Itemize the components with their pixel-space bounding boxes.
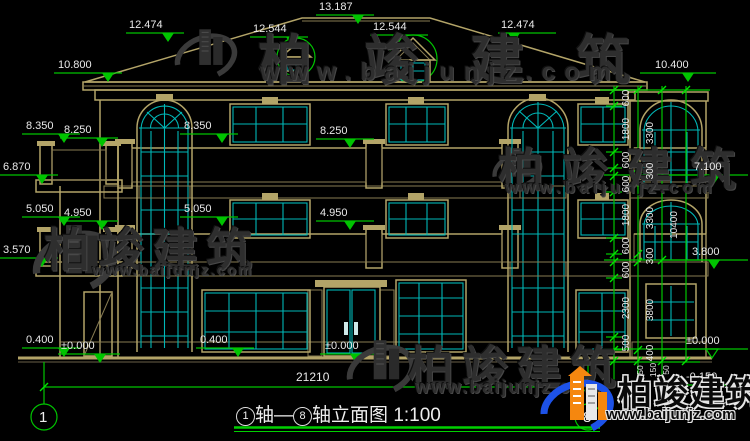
drawing-title: 1轴—8轴立面图 1:100 bbox=[236, 400, 441, 427]
dim-label: 300 bbox=[646, 248, 656, 265]
dim-label: 400 bbox=[646, 345, 656, 362]
level-label: 10.800 bbox=[58, 60, 92, 71]
level-label: 0.400 bbox=[26, 335, 54, 346]
level-label: 5.050 bbox=[26, 204, 54, 215]
brand-logo: 柏竣建筑 www.baijunjz.com bbox=[532, 362, 750, 441]
dim-label: 3300 bbox=[646, 207, 656, 229]
level-label: ±0.000 bbox=[686, 336, 720, 347]
dim-label: 600 bbox=[622, 152, 632, 169]
dim-label: 3300 bbox=[646, 122, 656, 144]
dim-label: 1800 bbox=[622, 118, 632, 140]
level-label: 7.100 bbox=[694, 162, 722, 173]
watermark-url: www.baijunjz.com bbox=[505, 178, 716, 198]
title-name: 轴立面图 bbox=[312, 405, 388, 426]
dim-label: 600 bbox=[622, 90, 632, 107]
level-label: 0.400 bbox=[200, 335, 228, 346]
level-label: 8.250 bbox=[64, 125, 92, 136]
brand-logo-url: www.baijunjz.com bbox=[606, 406, 735, 423]
dim-label: 600 bbox=[622, 238, 632, 255]
level-label: 5.050 bbox=[184, 204, 212, 215]
level-label: ±0.000 bbox=[325, 341, 359, 352]
title-axis-start: 1 bbox=[236, 407, 255, 426]
level-label: 8.250 bbox=[320, 126, 348, 137]
level-label: 4.950 bbox=[64, 208, 92, 219]
level-label: 8.350 bbox=[26, 121, 54, 132]
title-axis-end: 8 bbox=[293, 407, 312, 426]
level-label: 12.474 bbox=[129, 20, 163, 31]
dim-label: 3800 bbox=[646, 299, 656, 321]
dim-label: 1800 bbox=[622, 204, 632, 226]
dim-label: 300 bbox=[646, 163, 656, 180]
cad-elevation-drawing: 柏竣建筑 www.baijunjz.com 柏竣建筑 www.baijunjz.… bbox=[0, 0, 750, 441]
watermark-url: www.baijunjz.com bbox=[260, 58, 620, 87]
stair-arch-window-right bbox=[508, 94, 568, 352]
brand-logo-icon bbox=[532, 362, 624, 441]
level-label: 6.870 bbox=[3, 162, 31, 173]
level-label: 10.400 bbox=[655, 60, 689, 71]
level-label: 12.474 bbox=[501, 20, 535, 31]
level-label: 12.544 bbox=[253, 24, 287, 35]
title-sep: 轴— bbox=[255, 405, 293, 426]
level-label: ±0.000 bbox=[61, 341, 95, 352]
dim-label: 600 bbox=[622, 176, 632, 193]
watermark-logo-bottom bbox=[350, 340, 413, 389]
level-label: 13.187 bbox=[319, 2, 353, 13]
level-label: 3.570 bbox=[3, 245, 31, 256]
dim-label: 10400 bbox=[670, 211, 680, 239]
dim-label: 600 bbox=[622, 262, 632, 279]
dim-label: 2300 bbox=[622, 297, 632, 319]
title-scale: 1:100 bbox=[393, 405, 441, 426]
level-label: 8.350 bbox=[184, 121, 212, 132]
level-label: 4.950 bbox=[320, 208, 348, 219]
watermark-url: www.baijunjz.com bbox=[92, 262, 253, 279]
level-label: 3.800 bbox=[692, 247, 720, 258]
dim-label: 500 bbox=[622, 335, 632, 352]
level-label: 12.544 bbox=[373, 22, 407, 33]
axis-bubble-1: 1 bbox=[39, 409, 47, 426]
overall-dim-label: 21210 bbox=[296, 371, 329, 383]
